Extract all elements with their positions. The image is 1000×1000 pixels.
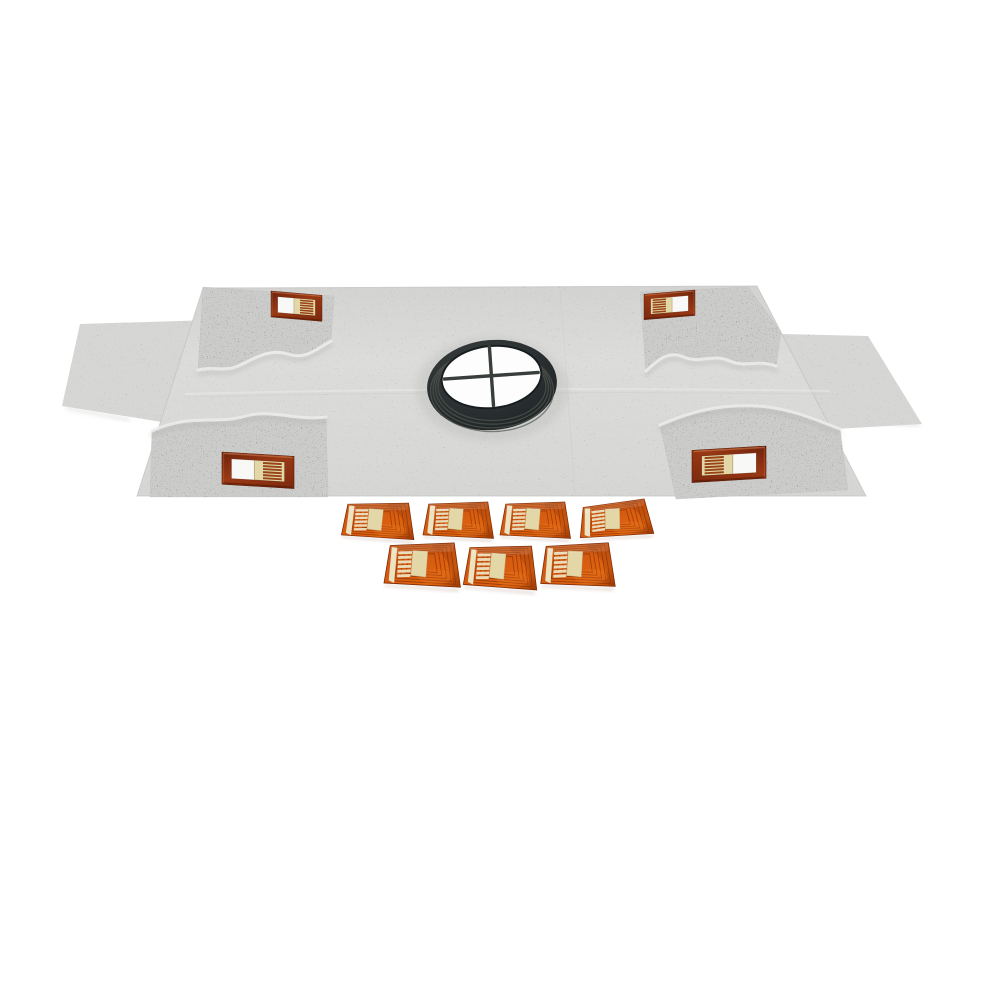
white-backdrop: [0, 0, 1000, 1000]
corner-patch-bottom-right: [692, 446, 766, 483]
sensor-pad-6: [463, 545, 537, 595]
corner-patch-top-left: [271, 291, 322, 321]
corner-patch-bottom-left: [222, 452, 294, 489]
product-photo-canvas: [0, 0, 1000, 1000]
product-photo: [0, 0, 1000, 1000]
corner-patch-top-right: [644, 290, 695, 320]
sensor-pad-1: [341, 502, 414, 544]
